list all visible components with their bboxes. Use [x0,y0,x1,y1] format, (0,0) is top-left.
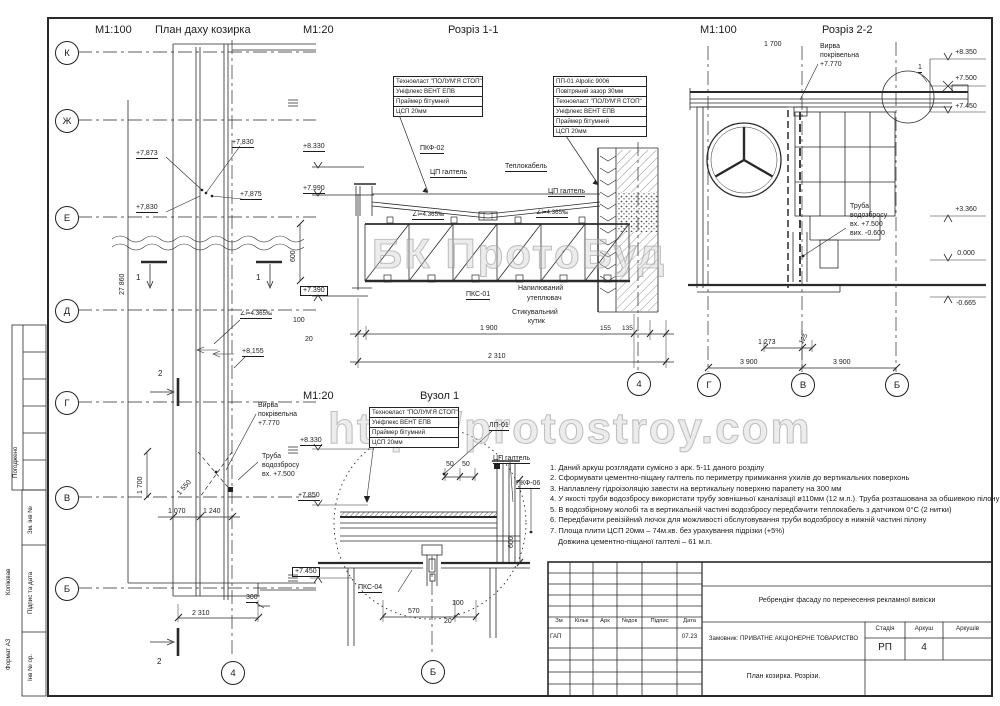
note-line: 4. У якості труби водозбросу використати… [550,495,999,503]
dim-label: 100 [293,317,305,325]
material-row: Праймер бітумний [554,117,646,127]
callout-label: водозбросу [850,212,887,220]
callout-label: Стикувальний [512,309,558,317]
margin-stamp-label: Інв № ор. [28,654,35,681]
elevation-label: +7.390 [300,286,328,296]
callout-label: Труба [850,203,869,211]
dim-label: 2 310 [192,610,210,618]
material-callout-stack: Техноеласт "ПОЛУМ'Я СТОП" Уніфлекс ВЕНТ … [369,407,459,448]
margin-stamp-label: Формат А3 [6,639,13,670]
material-row: ПП-01 Alpolic 9006 [554,77,646,87]
material-row: Техноеласт "ПОЛУМ'Я СТОП" [394,77,482,87]
callout-label: утеплювач [527,295,562,303]
material-row: Техноеласт "ПОЛУМ'Я СТОП" [554,97,646,107]
titleblock-col-header: Підпис [642,618,677,624]
watermark-brand: БК ПротоБуд [372,230,666,278]
titleblock-client: Замовник: ПРИВАТНЕ АКЦІОНЕРНЕ ТОВАРИСТВО [704,636,863,643]
note-line: Довжина цементно-піщаної галтелі – 61 м.… [558,538,712,546]
dim-label: 20 [305,336,313,344]
dim-label: 600 [508,536,516,548]
callout-label: вих. -0.600 [850,230,885,238]
callout-label: водозбросу [262,462,299,470]
note-line: 5. В водозбірному жолобі та в вертикальн… [550,506,951,514]
note-line: 6. Передбачити ревізійний лючок для можл… [550,516,926,524]
material-row: Техноеласт "ПОЛУМ'Я СТОП" [370,408,458,418]
dim-label: 600 [290,250,298,262]
callout-label: ПКФ-06 [516,480,540,489]
elevation-label: +7.500 [948,75,984,83]
callout-label: ЦП галтель [548,188,585,197]
axis-bubble: К [55,41,79,65]
material-row: ЦСП 20мм [370,438,458,447]
titleblock-col-header: Кільк [570,618,593,624]
callout-label: покрівельна [820,52,859,60]
dim-label: 155 [600,325,611,332]
callout-label: ПКС-01 [466,291,490,300]
elevation-label: +7,830 [232,139,254,148]
axis-bubble: Д [55,299,79,323]
axis-bubble: Е [55,206,79,230]
view-title: Розріз 1-1 [448,24,498,36]
callout-label: ЦП галтель [430,169,467,178]
section-mark-label: 2 [157,658,161,667]
elevation-label: +7.850 [298,492,320,501]
callout-label: Вирва [258,402,278,410]
material-row: ЦСП 20мм [394,107,482,116]
dim-label: 1 900 [480,325,498,333]
dim-label: 300 [246,594,258,603]
callout-label: ЛП-01 [489,422,509,431]
note-line: 1. Даний аркуш розглядати сумісно з арк.… [550,464,764,472]
axis-bubble: В [55,486,79,510]
titleblock-sheet-value: 4 [905,642,943,653]
elevation-label: +7,830 [136,204,158,213]
detail-mark-label: 1 [918,64,922,73]
axis-bubble: Г [55,391,79,415]
titleblock-project: Ребрендінг фасаду по перенесення рекламн… [704,597,990,605]
callout-label: +7.770 [820,61,842,69]
view-scale: М1:20 [303,390,334,402]
dim-label: 1 700 [764,41,782,49]
titleblock-col-header: Арк [593,618,617,624]
dim-label: 1 240 [203,508,221,516]
margin-stamp-label: Копіював [6,569,13,595]
material-row: Праймер бітумний [394,97,482,107]
axis-bubble: Ж [55,109,79,133]
callout-label: ЦП галтель [493,455,530,464]
callout-label: покрівельна [258,411,297,419]
axis-bubble: 4 [221,661,245,685]
drawing-sheet: БК ПротоБуд http://protostroy.com М1:100… [0,0,1000,706]
section-mark-label: 1 [136,274,140,283]
elevation-label: +8.330 [300,437,322,446]
callout-label: Труба [262,453,281,461]
callout-label: вх. +7.500 [262,471,295,479]
callout-label: вх. +7.500 [850,221,883,229]
dim-label: 1 700 [137,476,145,494]
callout-label: Напилюваний [518,285,563,293]
material-row: ЦСП 20мм [554,127,646,136]
view-scale: М1:100 [700,24,737,36]
elevation-label: -0.665 [948,300,984,308]
view-title: Розріз 2-2 [822,24,872,36]
material-callout-stack: ПП-01 Alpolic 9006 Повітряний зазор 30мм… [553,76,647,137]
material-row: Праймер бітумний [370,428,458,438]
elevation-label: +7.450 [948,103,984,111]
dim-label: 3 900 [833,359,851,367]
material-callout-stack: Техноеласт "ПОЛУМ'Я СТОП" Уніфлекс ВЕНТ … [393,76,483,117]
elevation-label: +7,873 [136,150,158,159]
dim-label: 50 [462,461,470,469]
material-row: Уніфлекс ВЕНТ ЕПВ [394,87,482,97]
dim-label: 1 273 [758,339,776,347]
dim-label: 2 310 [488,353,506,361]
dim-label: 3 900 [740,359,758,367]
note-line: 2. Сформувати цементно-піщану галтель по… [550,474,909,482]
note-line: 7. Площа плити ЦСП 20мм – 74м.кв. без ур… [550,527,784,535]
callout-label: ПКС-04 [358,584,382,593]
slope-label: ∠i=4.365‰ [412,212,444,220]
slope-label: ∠i=4.365‰ [240,311,272,319]
callout-label: Теплокабель [505,163,547,172]
axis-bubble: В [791,373,815,397]
margin-stamp-label: Погоджено [13,447,20,478]
axis-bubble: Б [421,660,445,684]
elevation-label: +3.360 [948,206,984,214]
callout-label: кутик [528,318,545,326]
elevation-label: 0.000 [948,250,984,258]
margin-stamp-label: Зм. інв № [28,506,35,534]
titleblock-col-header: Дата [677,618,702,624]
elevation-label: +8,155 [242,348,264,357]
elevation-label: +7.450 [292,567,320,577]
elevation-label: +7.990 [303,185,325,194]
dim-label: 1 070 [168,508,186,516]
section-mark-label: 2 [158,370,162,379]
titleblock-col-header: Зм [548,618,570,624]
titleblock-role: ГАП [550,634,561,641]
view-scale: М1:20 [303,24,334,36]
dim-label: 570 [408,608,420,616]
axis-bubble: Г [697,373,721,397]
dim-label: 50 [446,461,454,469]
titleblock-col-header: №док [617,618,642,624]
titleblock-stage-value: РП [865,642,905,653]
elevation-label: +7,875 [240,191,262,200]
callout-label: ПКФ-02 [420,145,444,154]
material-row: Уніфлекс ВЕНТ ЕПВ [554,107,646,117]
slope-label: ∠i=4.365‰ [536,210,568,218]
view-title: План даху козирка [155,24,251,36]
titleblock-sheets-header: Аркушів [943,626,992,633]
titleblock-stage-header: Стадія [865,626,905,633]
elevation-label: +8.330 [303,143,325,152]
margin-stamp-label: Підпис та дата [28,572,35,614]
view-title: Вузол 1 [420,390,459,402]
view-scale: М1:100 [95,24,132,36]
callout-label: +7.770 [258,420,280,428]
note-line: 3. Наплавлену гідроізоляцію завести на в… [550,485,841,493]
axis-bubble: Б [55,577,79,601]
callout-label: Вирва [820,43,840,51]
titleblock-date: 07.23 [677,634,702,641]
dim-label: 27 860 [119,274,127,295]
dim-label: 20 [444,618,452,626]
titleblock-doc-title: План козирка. Розрізи. [704,673,863,681]
material-row: Повітряний зазор 30мм [554,87,646,97]
titleblock-sheet-header: Аркуш [905,626,943,633]
elevation-label: +8.350 [948,49,984,57]
section-mark-label: 1 [256,274,260,283]
dim-label: 135 [622,325,633,332]
material-row: Уніфлекс ВЕНТ ЕПВ [370,418,458,428]
axis-bubble: Б [885,373,909,397]
dim-label: 100 [452,600,464,608]
axis-bubble: 4 [627,372,651,396]
